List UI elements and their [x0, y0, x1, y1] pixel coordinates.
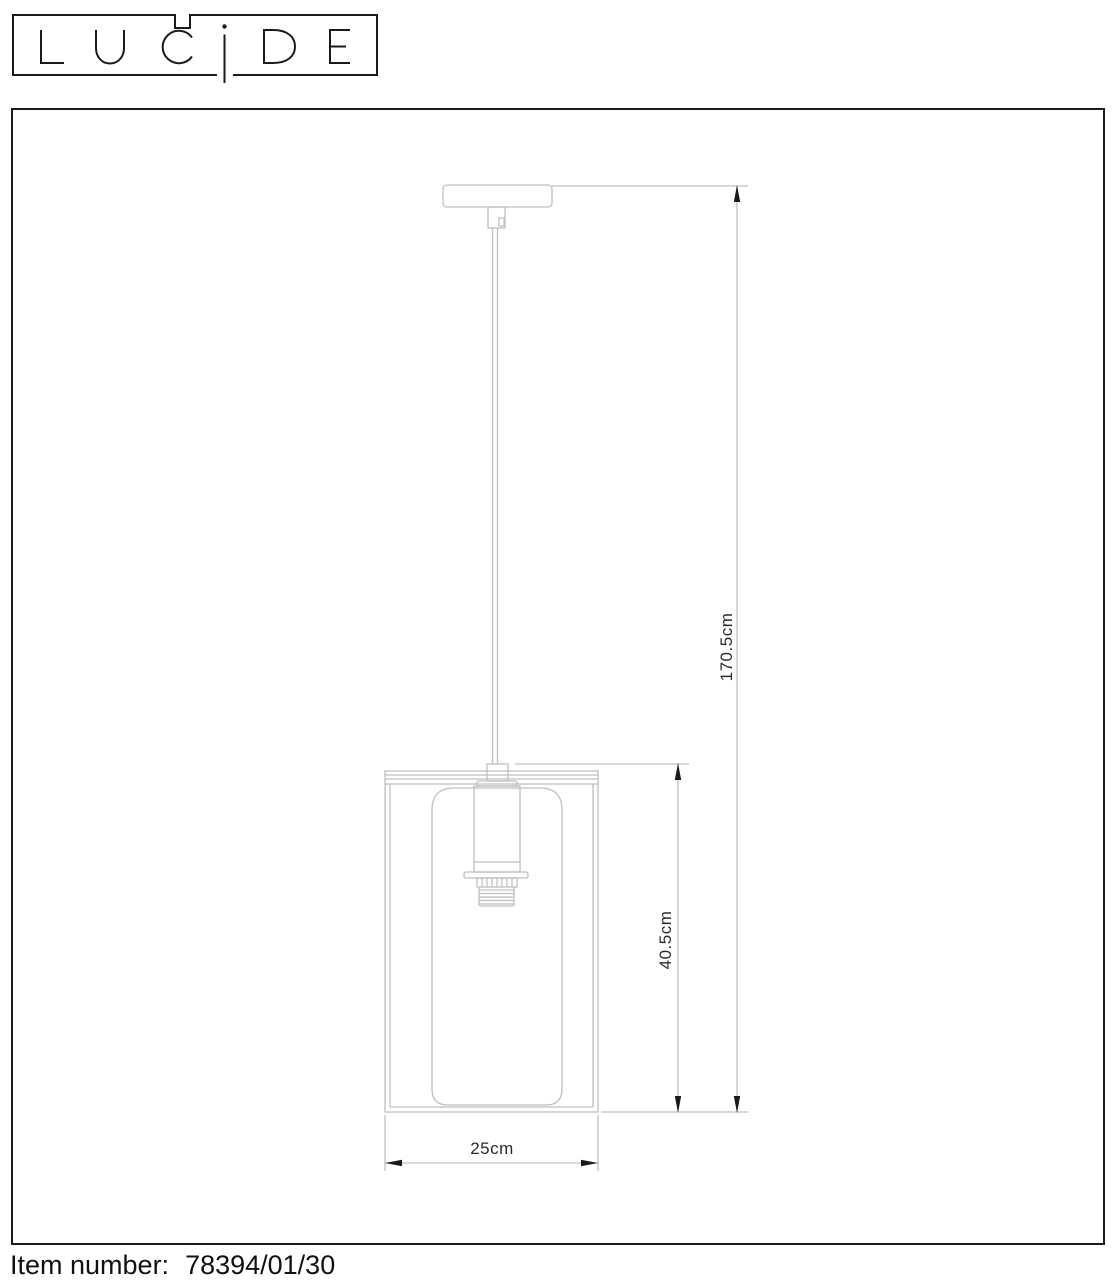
logo-letter-l	[41, 30, 64, 63]
item-number-row: Item number: 78394/01/30	[10, 1250, 335, 1280]
dimension-lines	[385, 186, 748, 1171]
dimension-label-shade-height: 40.5cm	[656, 911, 676, 970]
dimension-label-total-height: 170.5cm	[717, 613, 737, 682]
logo-letter-c	[163, 31, 192, 63]
socket-thread	[479, 887, 514, 906]
bulb-socket	[464, 786, 528, 906]
item-number-label: Item number:	[10, 1250, 169, 1280]
ceiling-canopy	[443, 185, 552, 228]
spec-sheet-page: 170.5cm 40.5cm 25cm Item number: 78394/0…	[0, 0, 1115, 1280]
pendant-lamp-drawing	[385, 185, 598, 1112]
drawing-border	[12, 109, 1104, 1244]
dimension-label-shade-width: 25cm	[470, 1139, 514, 1159]
arrow-right-width	[581, 1160, 598, 1166]
socket-body	[474, 786, 520, 872]
logo-letter-e	[330, 30, 350, 63]
inner-glass	[432, 788, 562, 1105]
lamp-shade	[385, 771, 598, 1112]
technical-drawing-canvas	[0, 0, 1115, 1280]
shade-outer	[385, 771, 598, 1112]
strain-relief-notch	[499, 218, 504, 226]
arrow-down-total	[734, 1096, 740, 1113]
socket-flange	[464, 872, 528, 878]
lucide-logo	[13, 15, 377, 83]
shade-frame-lines	[385, 775, 598, 1107]
arrow-up-shade	[675, 763, 681, 780]
logo-letter-u	[96, 30, 124, 64]
logo-box	[13, 15, 377, 75]
logo-letter-i-dot	[222, 24, 226, 28]
socket-ring-ticks	[482, 878, 512, 887]
logo-letter-d	[264, 30, 295, 63]
suspension-cord	[493, 228, 498, 764]
arrow-up-total	[734, 185, 740, 202]
item-number-value: 78394/01/30	[185, 1250, 335, 1280]
arrow-left-width	[385, 1160, 402, 1166]
arrow-down-shade	[675, 1096, 681, 1113]
